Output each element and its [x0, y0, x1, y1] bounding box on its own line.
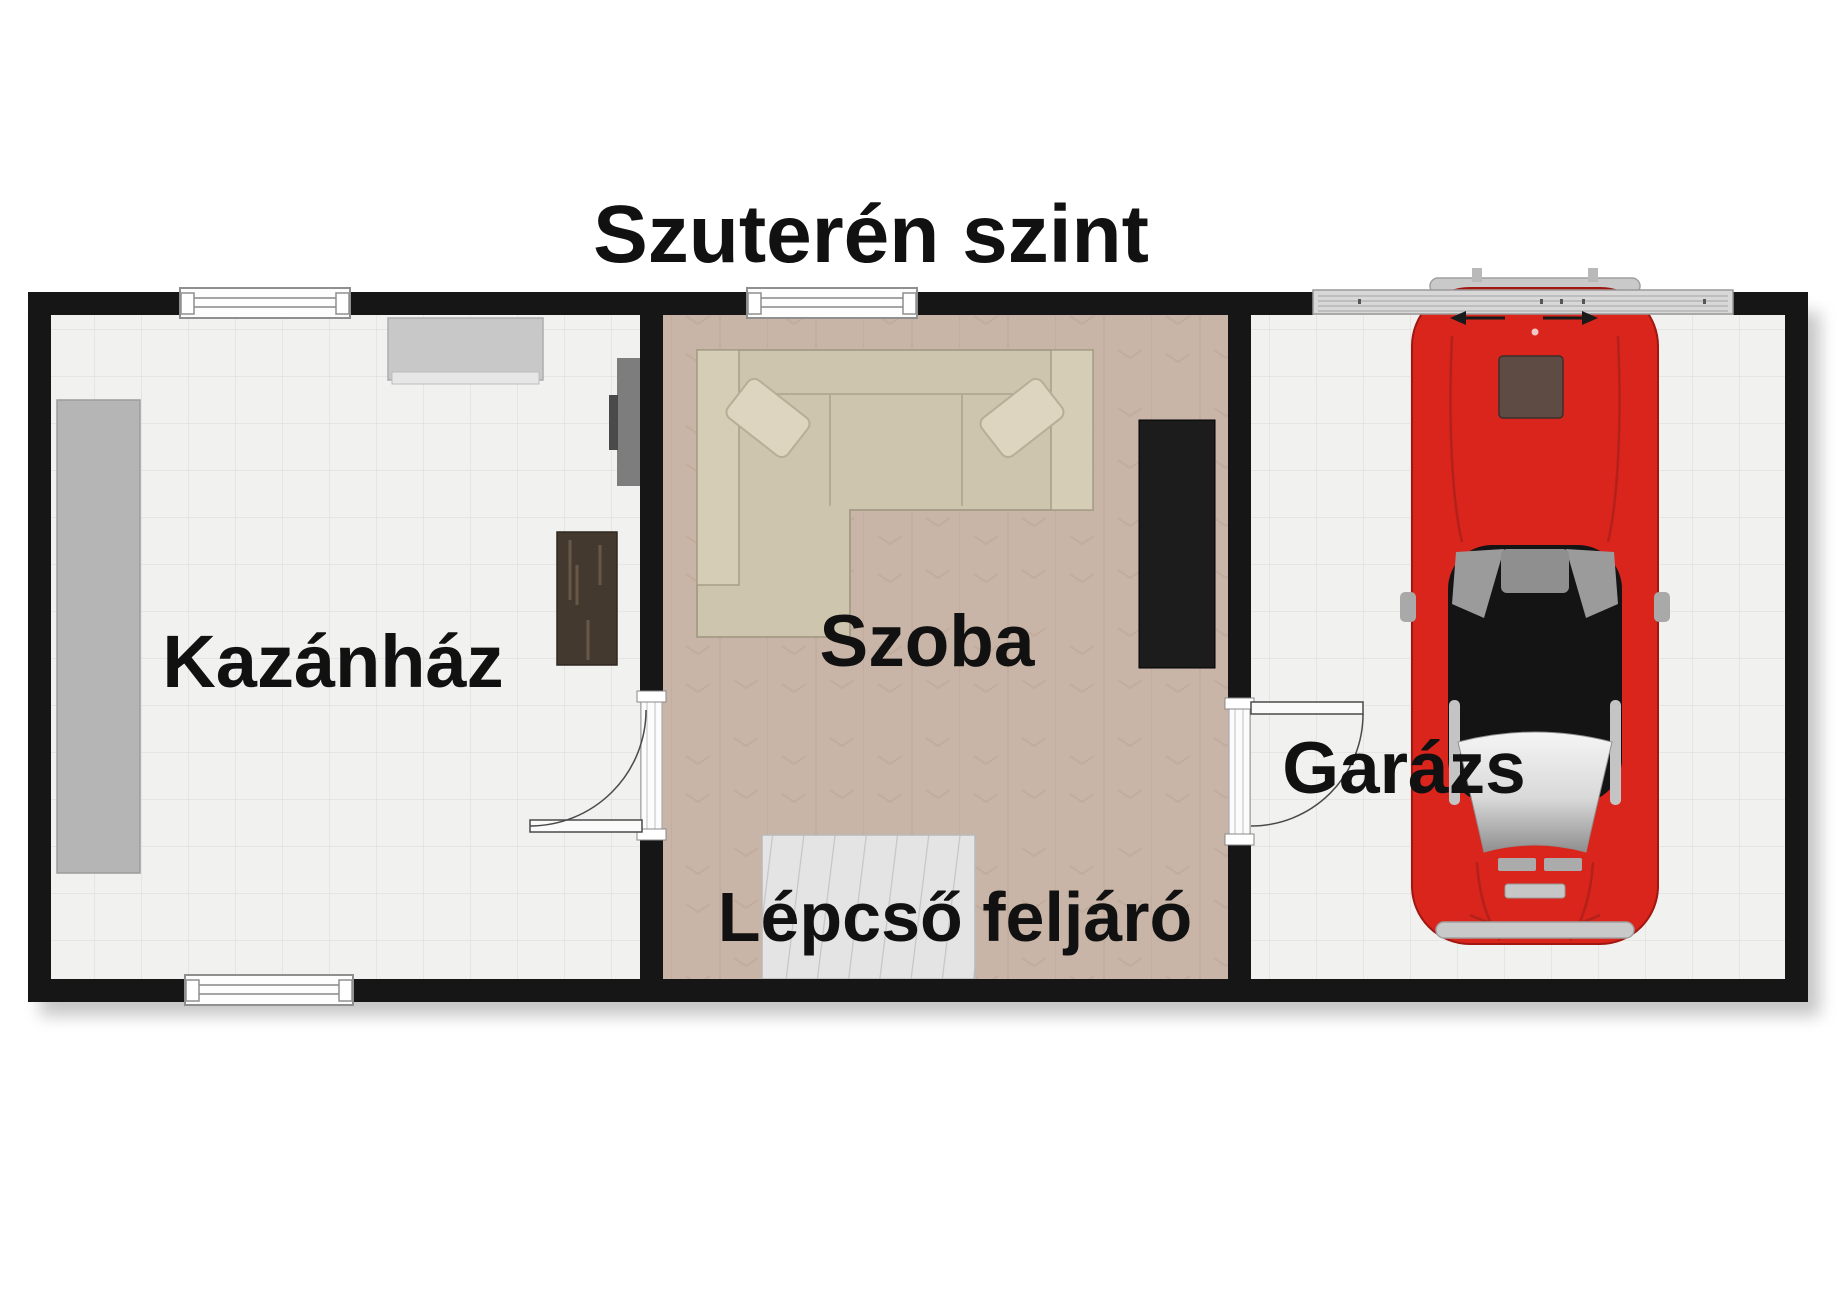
wall-segment [1228, 843, 1251, 979]
appliance-door [392, 372, 539, 384]
appliance-body [388, 318, 543, 380]
wall-segment [1785, 292, 1808, 1002]
room-label-stairs: Lépcső feljáró [718, 878, 1193, 956]
door-leaf [530, 820, 642, 832]
car-mirror-right [1654, 592, 1670, 622]
room-label-boiler: Kazánház [162, 620, 503, 703]
wall-segment [353, 979, 1808, 1002]
car-front-post-left [1472, 268, 1482, 282]
sofa-armrest-right [1051, 350, 1093, 510]
window-top-living [747, 288, 917, 318]
sofa-armrest-left [697, 350, 739, 585]
red-car [1400, 268, 1670, 944]
car-trunk-vent-left [1498, 858, 1536, 871]
page-title: Szuterén szint [593, 189, 1149, 280]
car-trunk-vent-right [1544, 858, 1582, 871]
wall-segment [917, 292, 1313, 315]
room-label-garage: Garázs [1282, 728, 1526, 809]
boiler-counter [57, 400, 140, 873]
car-hood-intake [1499, 356, 1563, 418]
panel-body [617, 358, 640, 486]
door-leaf [1251, 702, 1363, 714]
car-rear-bumper [1436, 922, 1634, 938]
car-mirror-left [1400, 592, 1416, 622]
car-rear-emblem [1505, 884, 1565, 898]
panel-knob [609, 395, 618, 450]
appliance-cabinet [388, 318, 543, 384]
car-hood-dot [1532, 329, 1539, 336]
wall-segment [28, 292, 51, 1002]
car-side-window-right [1610, 700, 1621, 805]
floorplan-canvas: Szuterén szint [0, 0, 1837, 1300]
window-top-boiler [180, 288, 350, 318]
wood-bench [557, 532, 617, 665]
room-label-living: Szoba [820, 601, 1036, 682]
wall-segment [350, 292, 747, 315]
wall-segment [640, 315, 663, 693]
wall-segment [640, 837, 663, 979]
car-front-post-right [1588, 268, 1598, 282]
car-sunroof [1501, 549, 1569, 593]
window-bottom-boiler [185, 975, 353, 1005]
wall-segment [28, 979, 185, 1002]
wall-segment [1228, 315, 1251, 700]
tv-sideboard [1139, 420, 1215, 668]
